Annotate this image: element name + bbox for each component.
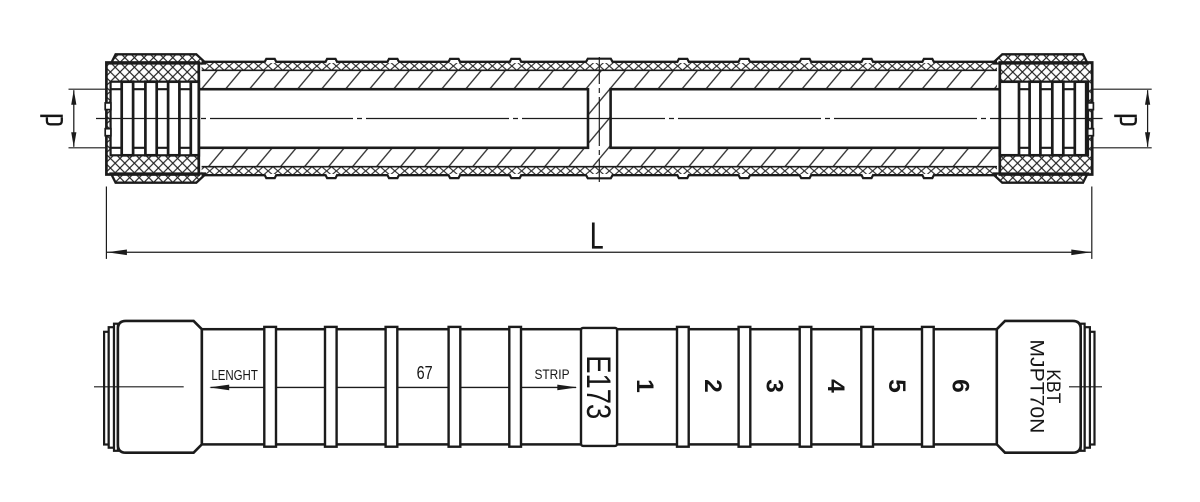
svg-text:3: 3 — [761, 379, 788, 393]
svg-text:MJPT70N: MJPT70N — [1026, 339, 1047, 433]
svg-text:E173: E173 — [579, 355, 617, 419]
svg-text:4: 4 — [822, 379, 849, 393]
svg-text:5: 5 — [883, 379, 910, 393]
svg-text:STRIP: STRIP — [535, 367, 570, 383]
svg-text:6: 6 — [946, 379, 973, 393]
svg-text:LENGHT: LENGHT — [211, 368, 258, 384]
svg-text:67: 67 — [417, 363, 433, 383]
svg-text:2: 2 — [699, 379, 726, 393]
svg-text:1: 1 — [631, 379, 658, 393]
